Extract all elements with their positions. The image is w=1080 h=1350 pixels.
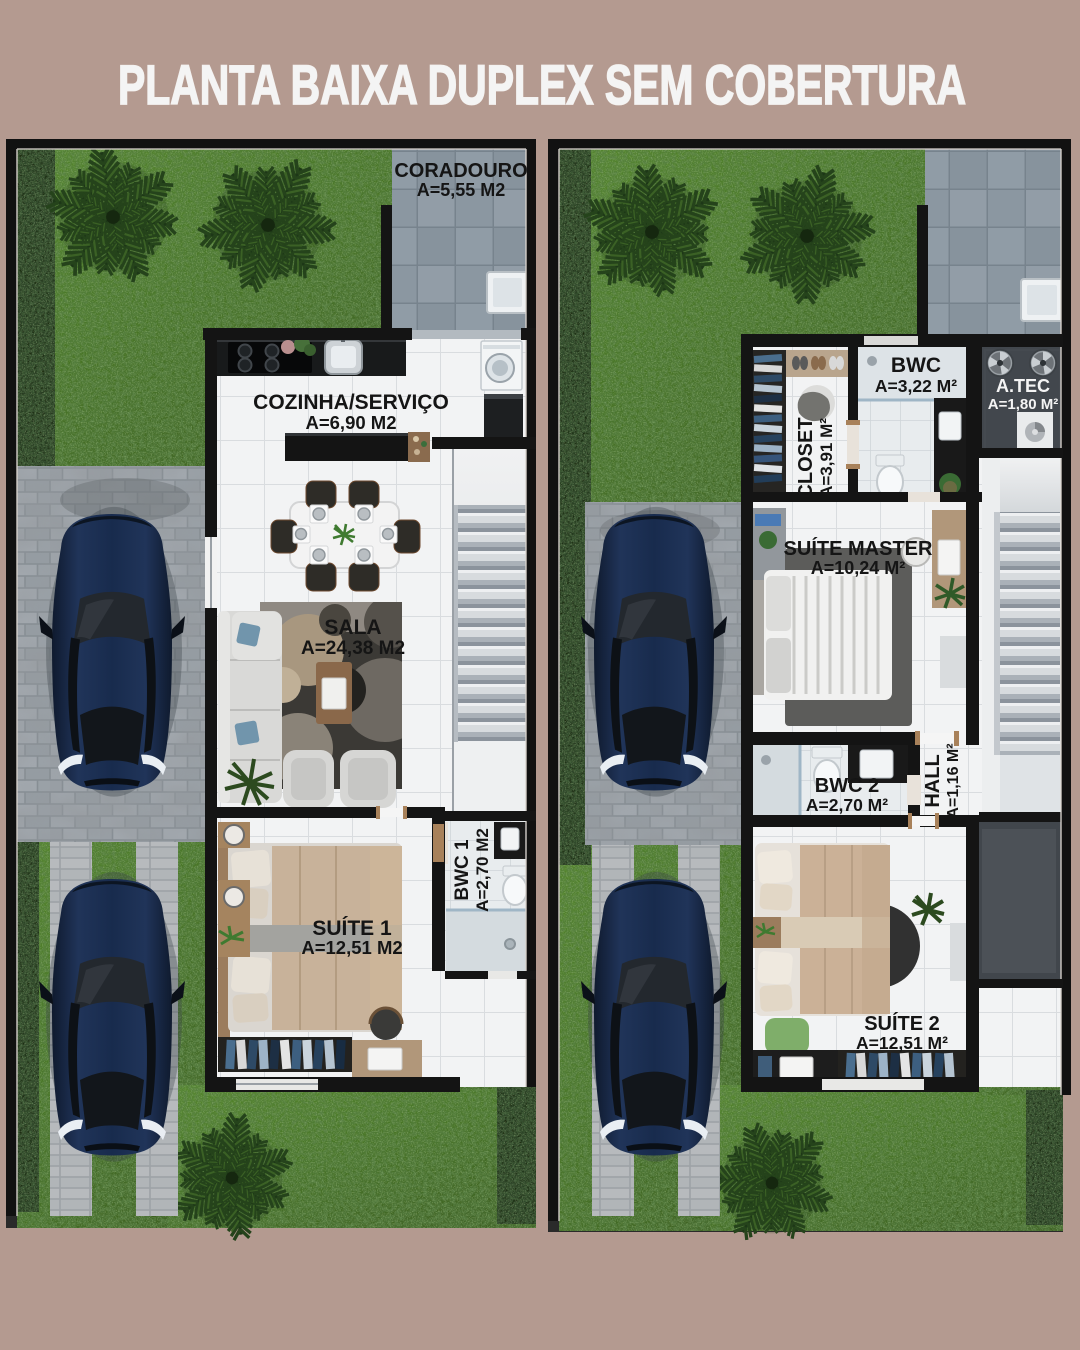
svg-text:A.TEC: A.TEC xyxy=(996,376,1050,396)
svg-text:A=24,38 M2: A=24,38 M2 xyxy=(301,638,405,659)
svg-text:A=2,70 M²: A=2,70 M² xyxy=(806,795,888,815)
svg-text:A=5,55 M2: A=5,55 M2 xyxy=(417,180,506,200)
svg-text:A=12,51 M²: A=12,51 M² xyxy=(856,1033,948,1053)
svg-text:A=1,80 M²: A=1,80 M² xyxy=(988,396,1058,413)
svg-text:A=12,51 M2: A=12,51 M2 xyxy=(301,937,402,958)
svg-text:SALA: SALA xyxy=(324,616,381,639)
svg-text:A=2,70 M2: A=2,70 M2 xyxy=(473,828,492,912)
svg-text:BWC 1: BWC 1 xyxy=(452,839,473,901)
svg-text:A=6,90 M2: A=6,90 M2 xyxy=(305,412,396,433)
svg-text:A=3,91 M²: A=3,91 M² xyxy=(817,418,836,498)
svg-text:COZINHA/SERVIÇO: COZINHA/SERVIÇO xyxy=(253,391,449,414)
svg-text:A=10,24 M²: A=10,24 M² xyxy=(811,558,906,578)
svg-text:CLOSET: CLOSET xyxy=(795,417,817,498)
svg-text:BWC 2: BWC 2 xyxy=(815,775,879,797)
svg-text:CORADOURO: CORADOURO xyxy=(394,160,527,182)
svg-text:SUÍTE 2: SUÍTE 2 xyxy=(864,1012,940,1035)
svg-text:PLANTA BAIXA DUPLEX SEM COBERT: PLANTA BAIXA DUPLEX SEM COBERTURA xyxy=(118,53,966,116)
svg-text:BWC: BWC xyxy=(891,354,941,377)
svg-text:A=1,16 M²: A=1,16 M² xyxy=(945,743,962,818)
svg-text:A=3,22 M²: A=3,22 M² xyxy=(875,376,957,396)
svg-text:SUÍTE MASTER: SUÍTE MASTER xyxy=(784,537,933,560)
svg-text:HALL: HALL xyxy=(922,754,944,807)
